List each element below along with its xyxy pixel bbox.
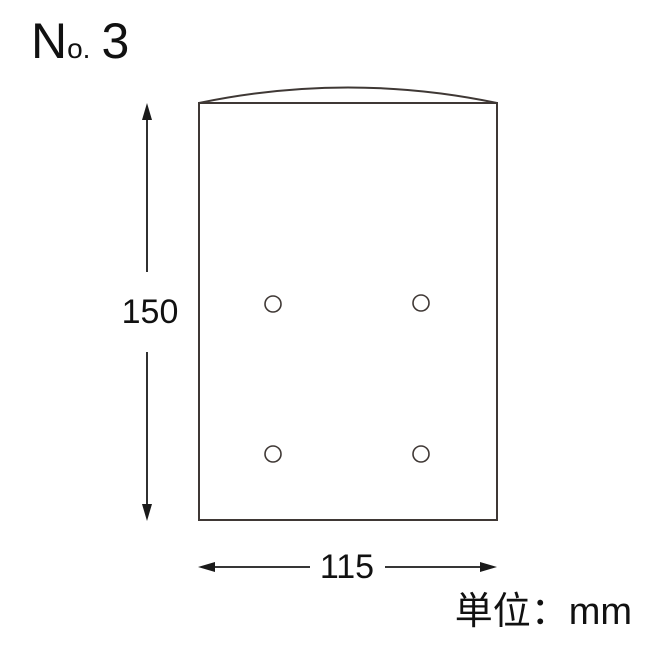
height-dimension: 150 [122, 103, 179, 521]
width-dimension-value: 115 [320, 548, 374, 586]
air-hole [265, 296, 281, 312]
bag-diagram: 150 115 [0, 0, 650, 650]
arrow-down-icon [142, 504, 152, 521]
air-hole [413, 295, 429, 311]
unit-label: 単位：mm [455, 592, 632, 634]
air-hole [413, 446, 429, 462]
air-hole [265, 446, 281, 462]
width-dimension: 115 [198, 548, 497, 586]
arrow-right-icon [480, 562, 497, 572]
bag-outline [199, 103, 497, 520]
height-dimension-value: 150 [122, 293, 179, 331]
bag-opening-arc [199, 88, 497, 104]
diagram-canvas: No.3 150 115 単位：mm [0, 0, 650, 650]
